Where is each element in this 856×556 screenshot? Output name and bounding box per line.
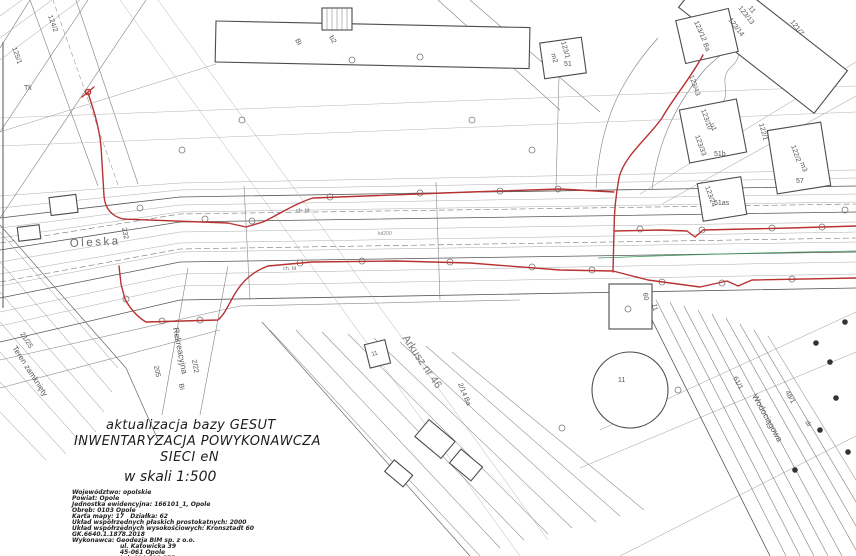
map-title-line-1: aktualizacja bazy GESUT <box>62 418 392 433</box>
red-branch-south-loop <box>119 261 613 322</box>
map-sheet: Oleska Rekreacyjna Wodociągowa Teren zam… <box>0 0 856 556</box>
street-label-teren-zamkniety: Teren zamknięty <box>10 344 49 398</box>
utility-label-kd200: kd200 <box>378 231 392 237</box>
sheet-label-arkusz: Arkusz nr 46 <box>400 333 444 391</box>
left-building-1 <box>49 194 78 215</box>
parcel-label-ba-b: Ba <box>462 396 472 407</box>
parcel-label-205: 205 <box>152 365 161 378</box>
building-123-12 <box>676 8 739 63</box>
left-building-2 <box>17 225 41 242</box>
title-block: aktualizacja bazy GESUT INWENTARYZACJA P… <box>62 418 392 556</box>
tree-dots <box>792 319 851 473</box>
parcel-label-51: 51 <box>564 61 572 68</box>
square-structure <box>609 284 652 329</box>
parcel-label-bi-a: Bi <box>177 383 185 391</box>
green-utility-line <box>598 251 856 258</box>
map-title-line-3: SIECI eN <box>62 450 392 465</box>
map-scale: w skali 1:500 <box>62 469 392 485</box>
map-metadata: Województwo: opolskie Powiat: Opole Jedn… <box>62 490 392 556</box>
buildings <box>17 0 847 487</box>
parcel-label-dr: dr <box>803 420 812 429</box>
parcel-label-122-1: 122/1 <box>757 123 769 142</box>
parcel-label-51as: 51as <box>714 200 730 207</box>
utility-label-ch-bl2: ch. bł <box>283 266 297 272</box>
long-building <box>215 21 530 69</box>
parcel-label-125-1: 125/1 <box>10 46 23 65</box>
parcel-label-61-1: 61/1 <box>731 376 744 391</box>
parcel-label-11-circle: 11 <box>618 377 625 384</box>
parcel-label-11-sq: 11 <box>650 303 658 311</box>
map-title-line-2: INWENTARYZACJA POWYKONAWCZA <box>62 434 392 449</box>
parcel-label-57: 57 <box>796 178 804 185</box>
round-structure <box>592 352 668 428</box>
parcel-label-51b: 51b <box>714 151 726 158</box>
yard-building-1 <box>415 420 455 459</box>
manhole-circles <box>123 54 848 431</box>
street-label-wodociagowa: Wodociągowa <box>750 392 785 444</box>
street-label-oleska: Oleska <box>70 235 121 250</box>
parcel-label-123-43: 123/43 <box>687 74 701 97</box>
yard-building-2 <box>449 449 482 481</box>
street-label-rekreacyjna: Rekreacyjna <box>171 326 190 375</box>
building-123-24 <box>697 177 746 221</box>
wodociagowa-band <box>640 296 856 556</box>
utility-label-ch-bl: ch. bl <box>296 208 309 214</box>
parcel-label-2-22: 2/22 <box>190 359 199 374</box>
parcel-label-60: 60 <box>641 292 649 301</box>
parcel-label-232: 232 <box>120 227 129 240</box>
red-node-tick <box>82 87 94 97</box>
parcel-label-tk: Tk <box>24 85 32 92</box>
